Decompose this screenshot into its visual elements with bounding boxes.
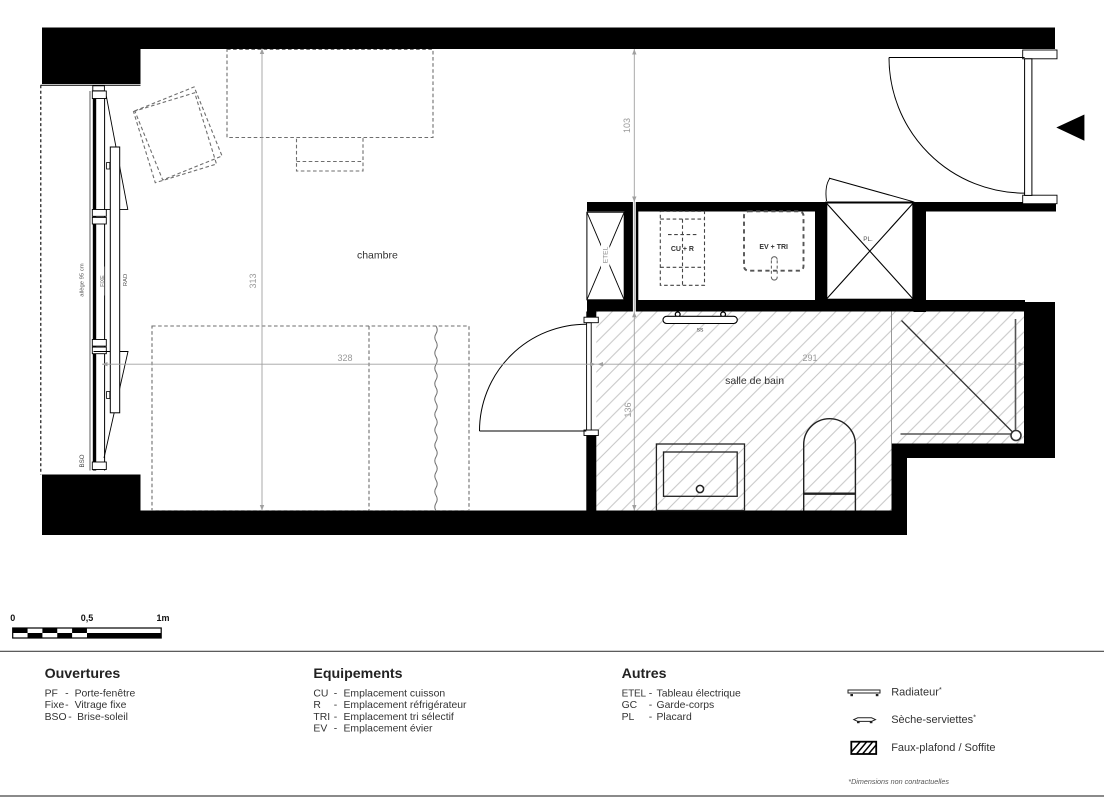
svg-text:Equipements: Equipements [313,666,402,682]
svg-text:0,5: 0,5 [81,613,94,623]
svg-text:291: 291 [802,353,817,363]
svg-text:Vitrage fixe: Vitrage fixe [75,700,127,711]
svg-text:FIXE: FIXE [100,275,106,287]
svg-text:Faux-plafond / Soffite: Faux-plafond / Soffite [891,742,995,754]
svg-text:-: - [334,688,337,699]
svg-text:CU + R: CU + R [671,246,694,253]
svg-text:EV + TRI: EV + TRI [759,244,788,251]
svg-text:Porte-fenêtre: Porte-fenêtre [75,688,136,699]
svg-text:Emplacement réfrigérateur: Emplacement réfrigérateur [344,700,468,711]
svg-text:PF: PF [45,688,58,699]
svg-text:Garde-corps: Garde-corps [657,700,715,711]
svg-text:Emplacement évier: Emplacement évier [344,724,433,735]
svg-text:-: - [649,712,652,723]
svg-text:Tableau électrique: Tableau électrique [657,688,742,699]
svg-text:Emplacement tri sélectif: Emplacement tri sélectif [344,712,454,723]
svg-text:Emplacement cuisson: Emplacement cuisson [344,688,446,699]
svg-text:-: - [649,700,652,711]
svg-text:-: - [334,712,337,723]
svg-text:GC: GC [622,700,638,711]
svg-text:-: - [334,724,337,735]
svg-text:Sèche-serviettes*: Sèche-serviettes* [891,713,976,727]
svg-text:CU: CU [313,688,328,699]
svg-text:RAD: RAD [123,274,129,286]
svg-text:328: 328 [337,353,352,363]
svg-text:chambre: chambre [357,250,398,262]
svg-text:ETEL: ETEL [622,688,647,699]
svg-text:allège 95 cm: allège 95 cm [80,263,86,296]
svg-text:Ouvertures: Ouvertures [45,666,121,682]
svg-text:-: - [334,700,337,711]
svg-text:-: - [65,700,68,711]
svg-text:0: 0 [10,613,15,623]
svg-text:PL.: PL. [863,236,873,243]
svg-text:salle de bain: salle de bain [725,375,784,387]
svg-text:136: 136 [623,402,633,417]
svg-text:R: R [313,700,321,711]
svg-text:BSO: BSO [79,454,86,467]
svg-text:Placard: Placard [657,712,692,723]
svg-text:Radiateur*: Radiateur* [891,685,942,699]
svg-text:Brise-soleil: Brise-soleil [77,712,128,723]
svg-text:-: - [649,688,652,699]
svg-text:103: 103 [622,118,632,133]
svg-text:313: 313 [248,273,258,288]
svg-text:BSO: BSO [45,712,67,723]
svg-text:Fixe: Fixe [45,700,65,711]
svg-text:ETEL: ETEL [603,246,610,263]
svg-text:Autres: Autres [622,666,667,682]
svg-text:1m: 1m [156,613,169,623]
svg-text:EV: EV [313,724,327,735]
svg-text:PL: PL [622,712,635,723]
svg-text:-: - [65,688,68,699]
svg-text:*Dimensions non contractuelles: *Dimensions non contractuelles [848,777,949,786]
svg-text:ss: ss [697,327,704,334]
svg-text:TRI: TRI [313,712,330,723]
svg-text:-: - [68,712,71,723]
